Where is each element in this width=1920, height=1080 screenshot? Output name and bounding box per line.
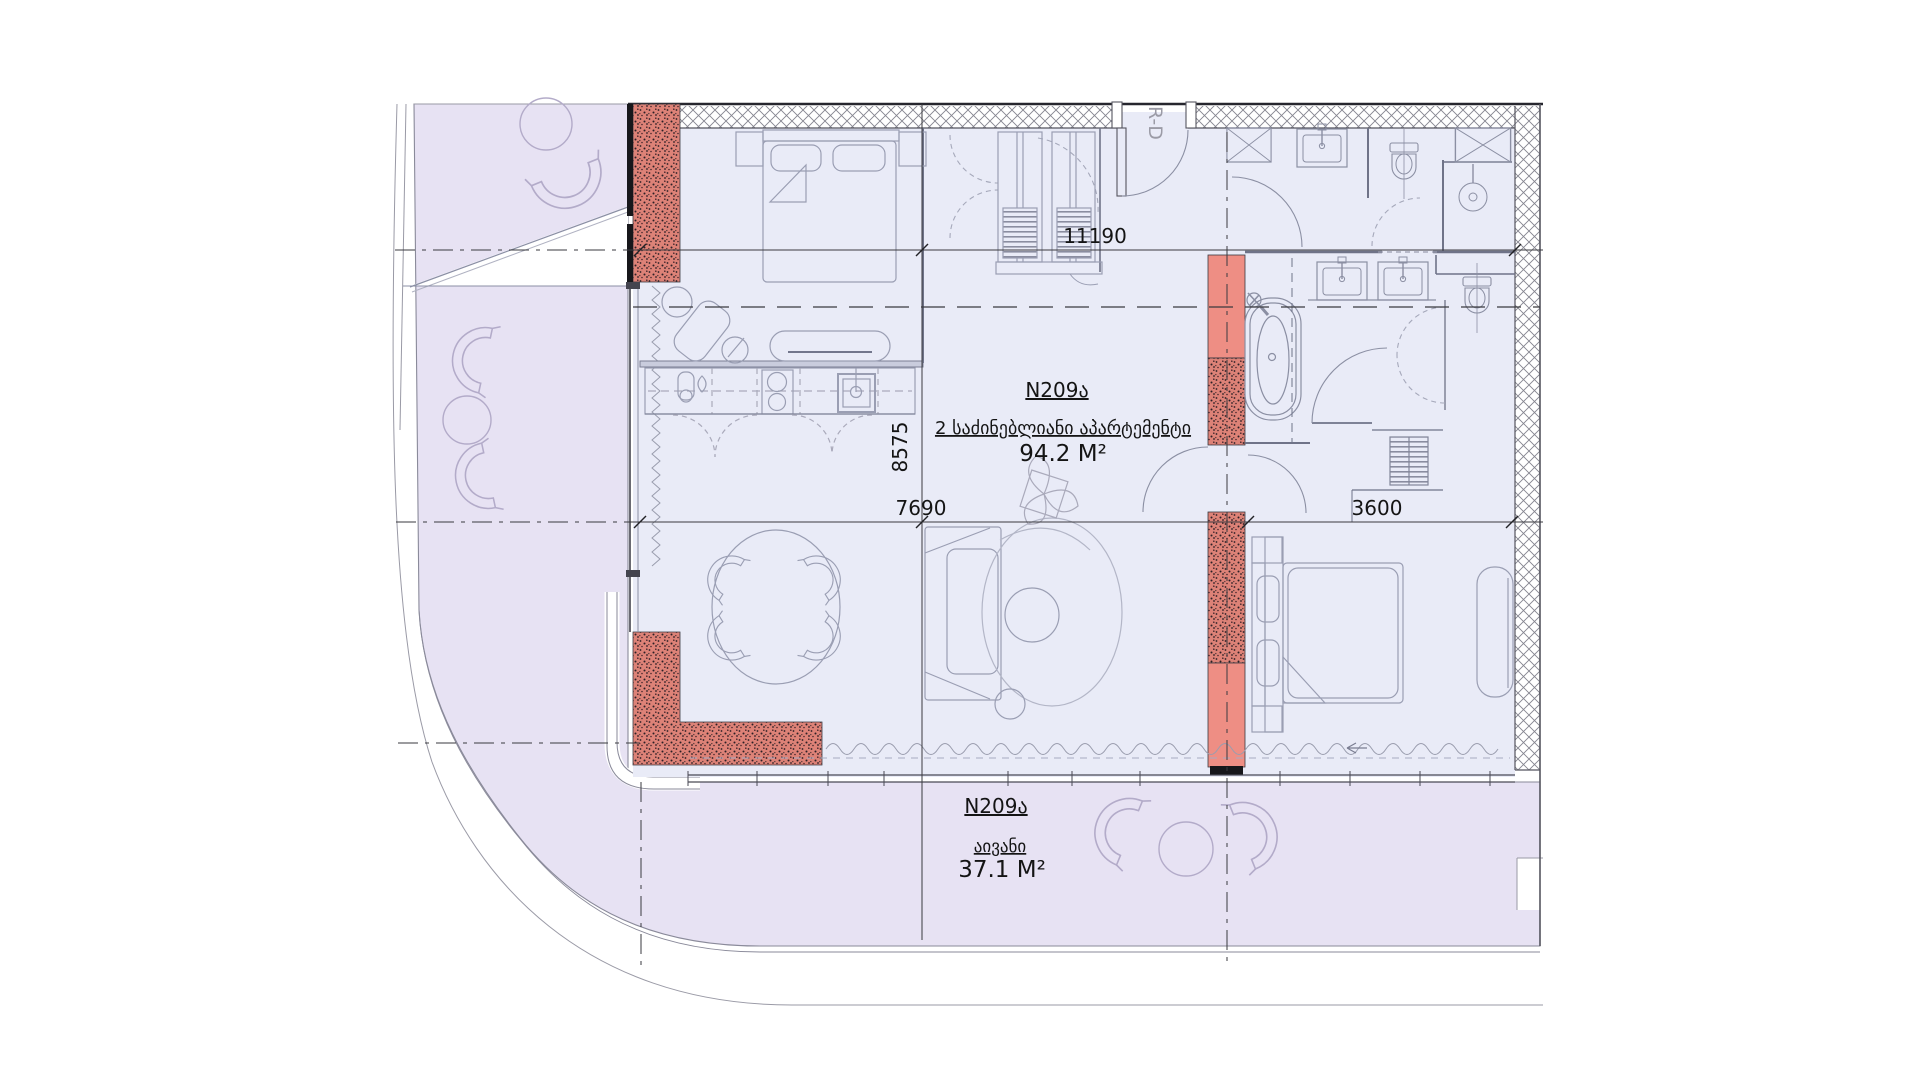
dimension-living-label: 7690 [896, 496, 947, 520]
wall-right-band [1515, 106, 1540, 770]
balcony-name-label: აივანი [974, 837, 1026, 857]
balcony-unit-label: N209ა [964, 794, 1027, 818]
floor-plan-drawing: 11190 8575 7690 3600 N209ა 2 საძინებლიან… [0, 0, 1920, 1080]
site-notch-right [1517, 858, 1543, 910]
apartment-area-label: 94.2 M² [1019, 441, 1107, 467]
dimension-left-label: 8575 [888, 422, 912, 473]
apartment-unit-label: N209ა [1025, 378, 1088, 402]
entrance-door-leaf [1117, 128, 1126, 196]
dimension-top-label: 11190 [1063, 224, 1127, 248]
floor-plan-page: 11190 8575 7690 3600 N209ა 2 საძინებლიან… [0, 0, 1920, 1080]
balcony-area-label: 37.1 M² [958, 857, 1046, 883]
entrance-label: R-D [1144, 106, 1166, 140]
dimension-bedroom-label: 3600 [1352, 496, 1403, 520]
wall-red-top-left [633, 104, 680, 282]
wall-top-band-left [680, 106, 1118, 128]
wall-top-band-right [1188, 106, 1515, 128]
apartment-type-label: 2 საძინებლიანი აპარტემენტი [935, 418, 1191, 439]
